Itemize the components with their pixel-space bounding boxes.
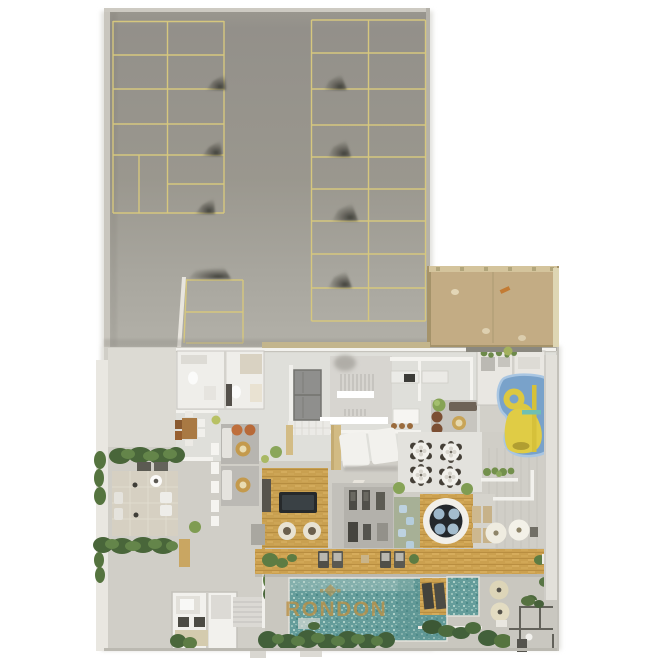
svg-text:RONDON: RONDON [285, 598, 387, 621]
